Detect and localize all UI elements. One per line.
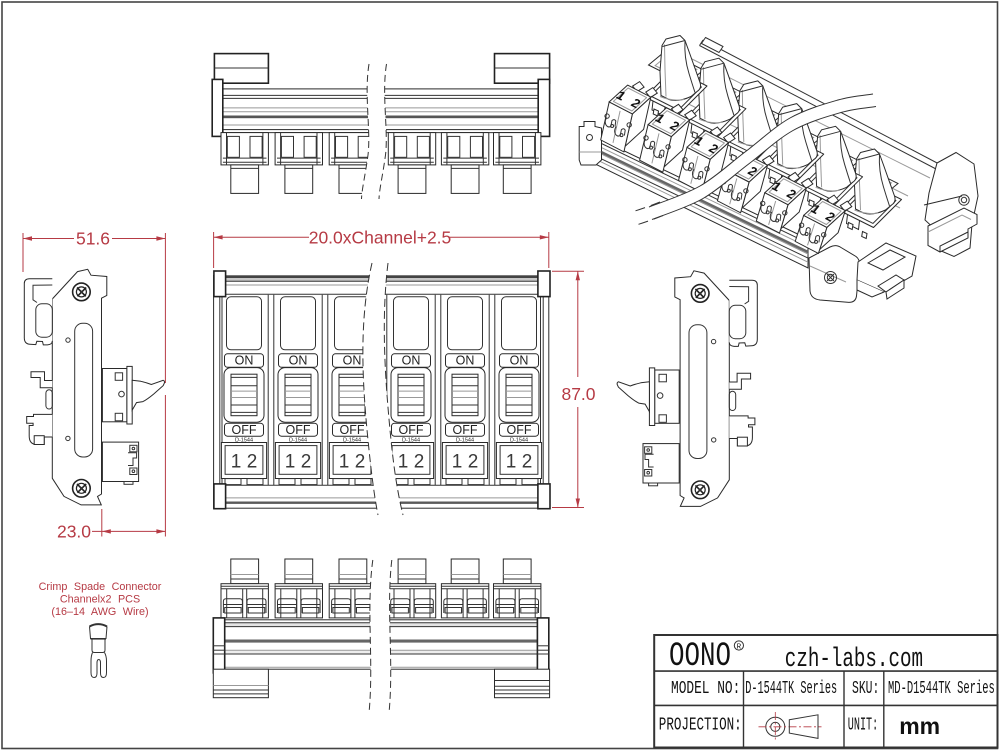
- svg-text:20.0xChannel+2.5: 20.0xChannel+2.5: [309, 228, 452, 248]
- svg-text:MD-D1544TK Series: MD-D1544TK Series: [888, 679, 995, 699]
- svg-text:(16–14 AWG Wire): (16–14 AWG Wire): [51, 606, 148, 618]
- svg-text:51.6: 51.6: [76, 229, 110, 249]
- svg-text:Channelx2 PCS: Channelx2 PCS: [60, 594, 140, 606]
- svg-text:SKU:: SKU:: [852, 679, 879, 699]
- svg-text:UNIT:: UNIT:: [848, 716, 878, 736]
- svg-text:Crimp Spade Connector: Crimp Spade Connector: [39, 581, 162, 593]
- svg-text:D-1544TK Series: D-1544TK Series: [745, 679, 837, 699]
- svg-text:MODEL NO:: MODEL NO:: [671, 679, 740, 699]
- svg-text:czh-labs.com: czh-labs.com: [785, 644, 923, 674]
- svg-text:R: R: [737, 644, 742, 652]
- svg-text:mm: mm: [899, 713, 940, 739]
- svg-text:87.0: 87.0: [561, 384, 595, 404]
- svg-text:PROJECTION:: PROJECTION:: [659, 716, 742, 736]
- svg-text:OONO: OONO: [669, 638, 731, 676]
- svg-text:23.0: 23.0: [57, 522, 91, 542]
